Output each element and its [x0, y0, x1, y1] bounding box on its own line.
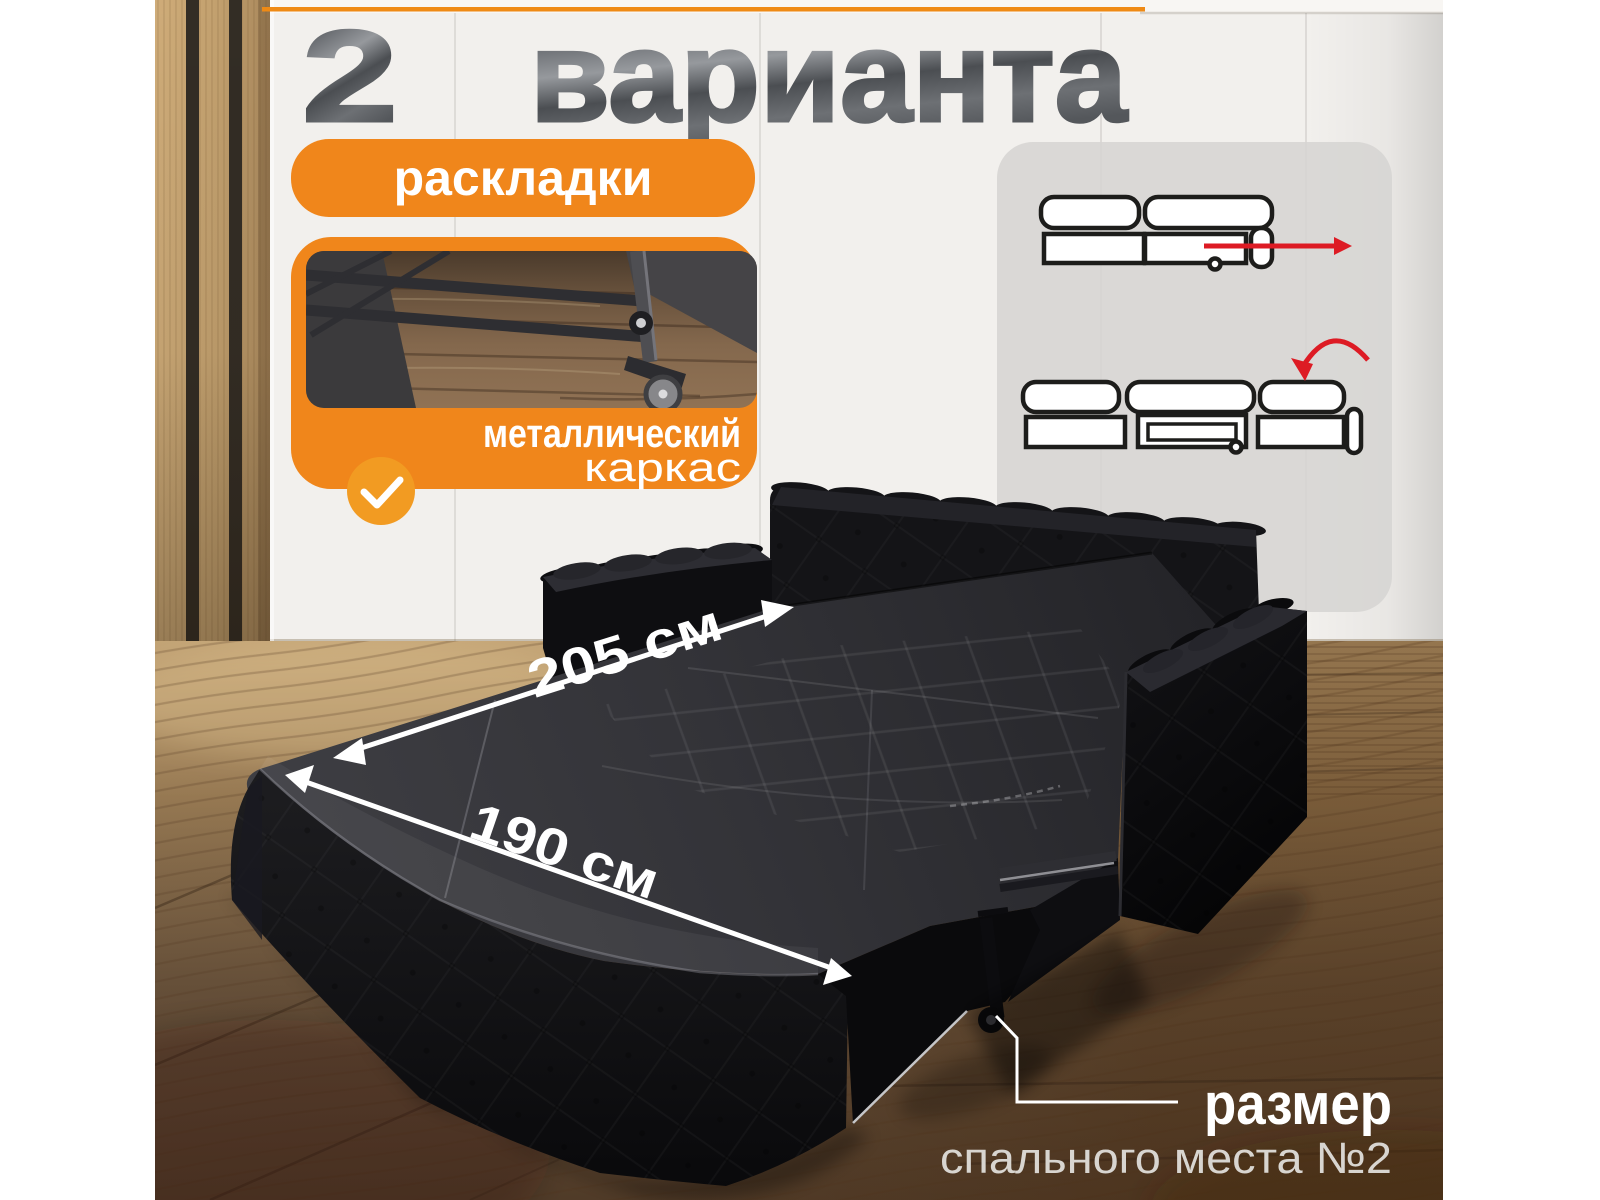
svg-text:раскладки: раскладки: [394, 150, 653, 206]
svg-text:2: 2: [302, 3, 398, 149]
svg-text:варианта: варианта: [530, 3, 1129, 149]
svg-text:каркас: каркас: [584, 446, 741, 490]
svg-text:спального места №2: спального места №2: [940, 1134, 1392, 1183]
svg-text:размер: размер: [1204, 1072, 1392, 1137]
